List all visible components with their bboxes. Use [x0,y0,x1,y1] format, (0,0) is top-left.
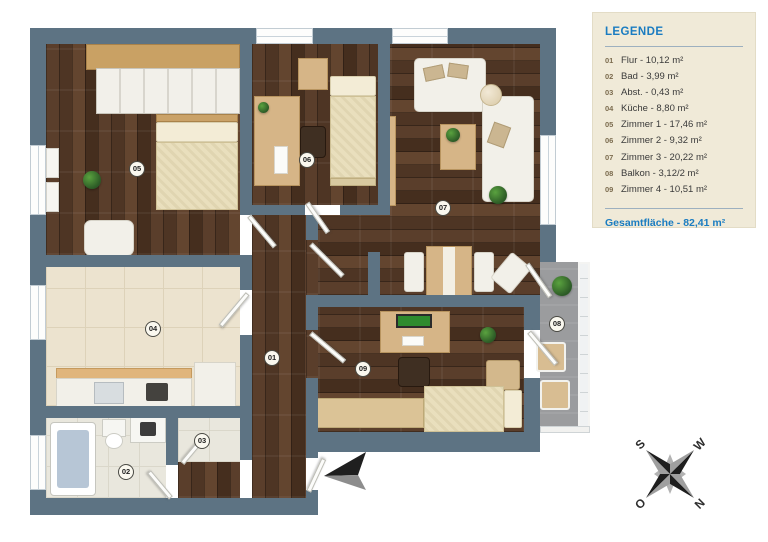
armchair [84,220,134,256]
wall-segment [240,255,252,290]
legend-item-label: Balkon - 3,12/2 m² [621,168,699,179]
wall-segment [306,378,318,432]
desk-paper [274,146,288,174]
bed-blanket [156,142,238,210]
legend-item-number: 02 [605,72,621,81]
plant-icon [480,327,496,343]
legend-item-number: 01 [605,56,621,65]
room-marker-08: 08 [549,316,565,332]
entrance-arrow-icon [322,450,368,494]
sofa-vertical [482,96,534,202]
wall-segment [306,295,540,307]
legend-item-label: Bad - 3,99 m² [621,71,679,82]
wall-segment [306,432,540,452]
room-marker-01: 01 [264,350,280,366]
legend-item: 02Bad - 3,99 m² [605,71,743,87]
sofa-cushion [447,63,469,80]
legend-item: 07Zimmer 3 - 20,22 m² [605,152,743,168]
legend-item-label: Zimmer 2 - 9,32 m² [621,135,702,146]
single-bed-foot [330,178,376,186]
compass-n-label: N [692,496,708,512]
bed-platform [310,398,424,428]
legend-item: 08Balkon - 3,12/2 m² [605,168,743,184]
plant-icon [489,186,507,204]
wall-segment [166,418,178,465]
window [30,285,46,340]
balcony-chair [540,380,570,410]
legend-item-number: 03 [605,88,621,97]
legend-item-number: 08 [605,169,621,178]
wall-segment [240,28,252,215]
plant-icon [83,171,101,189]
dining-chair [474,252,494,292]
wall-segment [524,307,540,330]
legend-item-label: Flur - 10,12 m² [621,55,683,66]
legend-item-label: Abst. - 0,43 m² [621,87,683,98]
office-chair [398,357,430,387]
legend-item-label: Zimmer 3 - 20,22 m² [621,152,707,163]
floor-lamp-icon [480,84,502,106]
legend-item: 09Zimmer 4 - 10,51 m² [605,184,743,200]
legend-item: 01Flur - 10,12 m² [605,55,743,71]
room-marker-07: 07 [435,200,451,216]
room-marker-05: 05 [129,161,145,177]
window [256,28,313,44]
wall-segment [540,225,556,262]
compass-rose: S N O W [618,424,722,524]
nightstand [298,58,328,90]
balcony-plant-icon [552,276,572,296]
bathtub-water [57,430,89,488]
wall-segment [46,255,240,267]
kitchen-sink [94,382,124,404]
window-sill [46,148,59,178]
wall-segment [30,340,46,435]
desk-plant-icon [258,102,269,113]
fridge [194,362,236,408]
wall-segment [252,205,305,215]
legend-item: 04Küche - 8,80 m² [605,103,743,119]
floor-vestibule [178,462,240,498]
single-bed-pillow [330,76,376,96]
legend-item-list: 01Flur - 10,12 m²02Bad - 3,99 m²03Abst. … [605,55,743,200]
room-marker-02: 02 [118,464,134,480]
washbasin-bowl [140,422,156,436]
floor-plan-page: 010203040506070809 LEGENDE 01Flur - 10,1… [0,0,768,542]
wall-segment [30,215,46,285]
wall-segment [30,498,318,515]
toilet-bowl [105,433,123,449]
window-sill [46,182,59,212]
single-bed-blanket [330,96,376,178]
legend-total: Gesamtfläche - 82,41 m² [605,217,743,229]
legend-divider [605,208,743,209]
table-plant-icon [446,128,460,142]
legend-item-label: Küche - 8,80 m² [621,103,689,114]
window [30,145,46,215]
legend-item-label: Zimmer 1 - 17,46 m² [621,119,707,130]
legend-item-number: 06 [605,136,621,145]
room-marker-04: 04 [145,321,161,337]
wardrobe-top [86,44,240,70]
dining-table [426,246,472,296]
legend-item-label: Zimmer 4 - 10,51 m² [621,184,707,195]
legend-title: LEGENDE [605,26,743,38]
bed-headboard [156,114,238,122]
wardrobe-doors [96,68,240,114]
dining-chair [404,252,424,292]
balcony-railing [540,426,590,433]
desk-paper [402,336,424,346]
wall-segment [46,406,240,418]
window [392,28,448,44]
legend-divider [605,46,743,47]
compass-s-label: S [633,437,649,453]
legend-item: 03Abst. - 0,43 m² [605,87,743,103]
legend-item: 05Zimmer 1 - 17,46 m² [605,119,743,135]
kitchen-counter [56,378,192,408]
laptop [396,314,432,328]
stove-cooktop [146,383,168,401]
wall-segment [540,28,556,135]
wall-segment [306,307,318,330]
legend-item-number: 07 [605,153,621,162]
bed-blanket [424,386,504,432]
window [540,135,556,225]
bed-pillows [156,122,238,142]
room-marker-03: 03 [194,433,210,449]
wall-segment [240,335,252,460]
legend-panel: LEGENDE 01Flur - 10,12 m²02Bad - 3,99 m²… [592,12,756,228]
wall-segment [30,28,46,145]
wall-segment [368,252,380,298]
bed-pillows [504,390,522,428]
wall-segment [378,28,390,215]
window [30,435,46,490]
wall-segment [306,452,318,458]
room-marker-09: 09 [355,361,371,377]
legend-item: 06Zimmer 2 - 9,32 m² [605,135,743,151]
wall-segment [30,28,256,44]
balcony-railing [578,262,590,433]
wall-segment [524,378,540,432]
legend-item-number: 04 [605,104,621,113]
legend-item-number: 05 [605,120,621,129]
room-marker-06: 06 [299,152,315,168]
legend-item-number: 09 [605,185,621,194]
